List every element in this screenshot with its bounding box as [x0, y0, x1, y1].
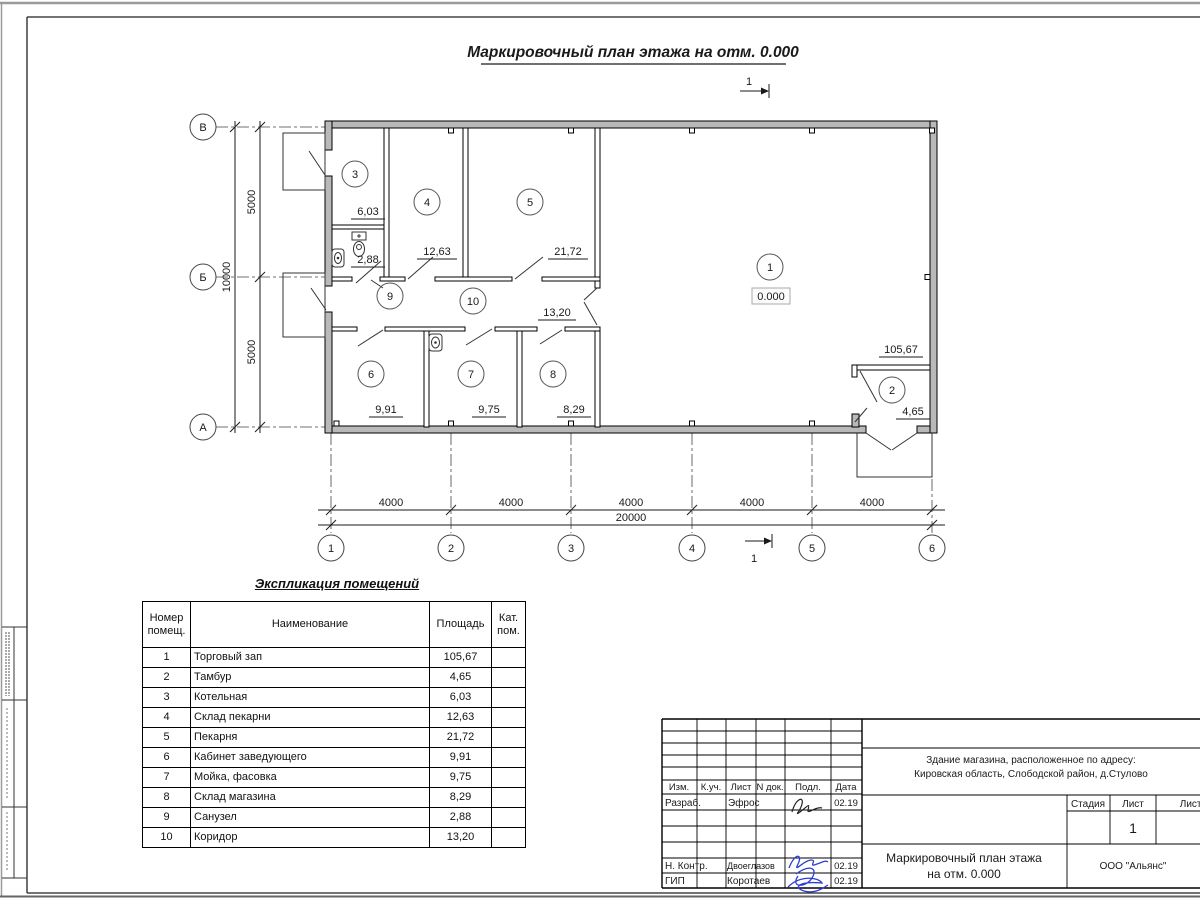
- table-row: 3 Котельная 6,03: [143, 688, 526, 708]
- cell-cat: [492, 708, 526, 728]
- cell-name: Мойка, фасовка: [191, 768, 430, 788]
- explication-table: Номер помещ. Наименование Площадь Кат. п…: [142, 601, 526, 848]
- exterior-walls: [325, 121, 937, 433]
- section-mark-bottom-label: 1: [751, 553, 757, 565]
- cell-name: Пекарня: [191, 728, 430, 748]
- table-title: Экспликация помещений: [227, 576, 447, 591]
- room-circle-6: 6: [368, 369, 374, 381]
- cell-name: Торговый зап: [191, 648, 430, 668]
- area-label-10: 13,20: [543, 307, 571, 319]
- area-label-4: 12,63: [423, 246, 451, 258]
- cell-num: 3: [143, 688, 191, 708]
- cell-cat: [492, 748, 526, 768]
- area-label-9: 2,88: [357, 254, 378, 266]
- area-label-8: 8,29: [563, 404, 584, 416]
- area-labels: 105,67 4,65 6,03 12,63 21,72 9,91 9,75 8…: [351, 206, 930, 419]
- signature-developer: [792, 799, 822, 813]
- cell-num: 2: [143, 668, 191, 688]
- stamp-name-developer: Эфрос: [728, 797, 760, 809]
- cell-num: 6: [143, 748, 191, 768]
- room-circle-1: 1: [767, 262, 773, 274]
- table-row: 4 Склад пекарни 12,63: [143, 708, 526, 728]
- level-mark: 0.000: [757, 291, 785, 303]
- stamp-date-ncontr: 02.19: [834, 861, 858, 872]
- area-label-5: 21,72: [554, 246, 582, 258]
- section-mark-top-label: 1: [746, 76, 752, 88]
- cell-num: 7: [143, 768, 191, 788]
- table-row: 9 Санузел 2,88: [143, 808, 526, 828]
- dim-4000-4: 4000: [740, 497, 764, 509]
- cell-cat: [492, 768, 526, 788]
- dim-20000: 20000: [616, 512, 647, 524]
- stamp-address-line1: Здание магазина, расположенное по адресу…: [926, 755, 1136, 766]
- dim-5000-1: 5000: [246, 190, 258, 214]
- cell-name: Тамбур: [191, 668, 430, 688]
- partition-walls: [332, 128, 930, 427]
- cell-area: 9,91: [430, 748, 492, 768]
- cell-cat: [492, 688, 526, 708]
- left-margin-boxes: [2, 627, 27, 878]
- dim-4000-1: 4000: [379, 497, 403, 509]
- cell-num: 9: [143, 808, 191, 828]
- stamp-doc-title-line1: Маркировочный план этажа: [886, 851, 1042, 865]
- stamp-col-podp: Подл.: [795, 782, 821, 793]
- room-circle-5: 5: [527, 197, 533, 209]
- room-circle-9: 9: [387, 291, 393, 303]
- room-circle-3: 3: [352, 169, 358, 181]
- stamp-col-ndok: N док.: [756, 782, 783, 793]
- axis-col-2: 2: [448, 543, 454, 555]
- room-circle-8: 8: [550, 369, 556, 381]
- stamp-doc-title-line2: на отм. 0.000: [927, 867, 1001, 881]
- axis-col-4: 4: [689, 543, 695, 555]
- axis-col-5: 5: [809, 543, 815, 555]
- room-circle-7: 7: [468, 369, 474, 381]
- table-header-row: Номер помещ. Наименование Площадь Кат. п…: [143, 602, 526, 648]
- cell-name: Котельная: [191, 688, 430, 708]
- section-mark-top: [740, 84, 769, 98]
- cell-name: Склад магазина: [191, 788, 430, 808]
- cell-area: 4,65: [430, 668, 492, 688]
- cell-num: 4: [143, 708, 191, 728]
- axis-col-3: 3: [568, 543, 574, 555]
- stamp-col-list: Лист: [731, 782, 752, 793]
- drawing-sheet: Маркировочный план этажа на отм. 0.000 1…: [0, 0, 1200, 900]
- cell-cat: [492, 788, 526, 808]
- area-label-2: 4,65: [902, 406, 923, 418]
- cell-cat: [492, 808, 526, 828]
- cell-num: 10: [143, 828, 191, 848]
- stamp-sheets-label: Листов: [1180, 799, 1200, 810]
- room-circle-4: 4: [424, 197, 430, 209]
- dim-4000-3: 4000: [619, 497, 643, 509]
- axis-col-1: 1: [328, 543, 334, 555]
- cell-num: 5: [143, 728, 191, 748]
- axis-row-v: В: [199, 122, 206, 134]
- cell-area: 105,67: [430, 648, 492, 668]
- toilet-icon: [352, 232, 366, 257]
- dim-4000-5: 4000: [860, 497, 884, 509]
- cell-area: 13,20: [430, 828, 492, 848]
- cell-area: 21,72: [430, 728, 492, 748]
- cell-cat: [492, 828, 526, 848]
- dim-5000-2: 5000: [246, 340, 258, 364]
- stamp-stage-label: Стадия: [1071, 799, 1105, 810]
- cell-area: 12,63: [430, 708, 492, 728]
- axis-row-b: Б: [199, 272, 206, 284]
- stamp-sheet-label: Лист: [1122, 799, 1144, 810]
- cell-name: Склад пекарни: [191, 708, 430, 728]
- cell-num: 1: [143, 648, 191, 668]
- cell-cat: [492, 648, 526, 668]
- plan-title: Маркировочный план этажа на отм. 0.000: [467, 44, 799, 61]
- header-area: Площадь: [430, 602, 492, 648]
- table-row: 2 Тамбур 4,65: [143, 668, 526, 688]
- cell-name: Санузел: [191, 808, 430, 828]
- stamp-address-line2: Кировская область, Слободской район, д.С…: [914, 768, 1148, 780]
- cell-cat: [492, 668, 526, 688]
- table-row: 7 Мойка, фасовка 9,75: [143, 768, 526, 788]
- room-circle-10: 10: [467, 296, 479, 308]
- dim-10000: 10000: [221, 262, 233, 293]
- stamp-name-gip: Коротаев: [727, 876, 770, 887]
- cell-area: 2,88: [430, 808, 492, 828]
- table-row: 8 Склад магазина 8,29: [143, 788, 526, 808]
- stamp-role-developer: Разраб.: [665, 797, 701, 809]
- cell-name: Кабинет заведующего: [191, 748, 430, 768]
- stamp-col-data: Дата: [835, 782, 857, 793]
- stamp-date-developer: 02.19: [834, 798, 858, 809]
- axis-row-a: А: [199, 422, 207, 434]
- sink-icon: [332, 249, 344, 267]
- cell-area: 9,75: [430, 768, 492, 788]
- stamp-texts: Изм. К.уч. Лист N док. Подл. Дата Разраб…: [665, 755, 1200, 887]
- cell-cat: [492, 728, 526, 748]
- area-label-1: 105,67: [884, 344, 918, 356]
- sink-icon-2: [429, 334, 442, 351]
- header-cat: Кат. пом.: [492, 602, 526, 648]
- room-circle-2: 2: [889, 385, 895, 397]
- stamp-role-ncontr: Н. Контр.: [665, 861, 708, 872]
- stamp-col-izm: Изм.: [669, 782, 689, 793]
- axis-col-6: 6: [929, 543, 935, 555]
- header-num: Номер помещ.: [143, 602, 191, 648]
- cell-num: 8: [143, 788, 191, 808]
- table-row: 10 Коридор 13,20: [143, 828, 526, 848]
- stamp-role-gip: ГИП: [665, 876, 685, 887]
- stamp-sheet-number: 1: [1129, 820, 1137, 836]
- stamp-name-ncontr: Двоеглазов: [727, 861, 775, 871]
- area-label-3: 6,03: [357, 206, 378, 218]
- door-leaves: [309, 151, 917, 450]
- stamp-col-kuch: К.уч.: [701, 782, 722, 793]
- cell-area: 6,03: [430, 688, 492, 708]
- section-mark-bottom: [745, 534, 772, 548]
- cell-name: Коридор: [191, 828, 430, 848]
- dim-4000-2: 4000: [499, 497, 523, 509]
- stamp-company: ООО "Альянс": [1100, 861, 1167, 872]
- table-row: 6 Кабинет заведующего 9,91: [143, 748, 526, 768]
- area-label-7: 9,75: [478, 404, 499, 416]
- stamp-date-gip: 02.19: [834, 876, 858, 887]
- table-row: 1 Торговый зап 105,67: [143, 648, 526, 668]
- header-name: Наименование: [191, 602, 430, 648]
- cell-area: 8,29: [430, 788, 492, 808]
- area-label-6: 9,91: [375, 404, 396, 416]
- table-row: 5 Пекарня 21,72: [143, 728, 526, 748]
